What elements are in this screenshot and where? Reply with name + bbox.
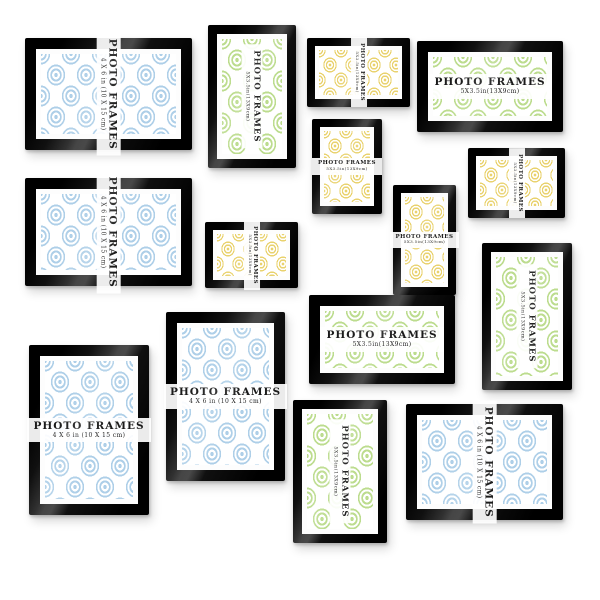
frame-title: PHOTO FRAMES — [339, 425, 349, 517]
frame-size-label: 5X3.5in(13X9cm) — [434, 88, 545, 95]
frame-mat: PHOTO FRAMES 4 X 6 in (10 X 15 cm) — [36, 49, 181, 139]
frame-mat: PHOTO FRAMES 5X3.5in(13X9cm) — [320, 306, 444, 373]
frame-mat: PHOTO FRAMES 5X3.5in(13X9cm) — [476, 156, 557, 210]
frame-label: PHOTO FRAMES 5X3.5in(13X9cm) — [428, 52, 552, 121]
photo-frame-12: PHOTO FRAMES 4 X 6 in (10 X 15 cm) — [29, 345, 149, 515]
frame-size-label: 5X3.5in(13X9cm) — [326, 341, 437, 348]
frame-label: PHOTO FRAMES 4 X 6 in (10 X 15 cm) — [36, 49, 181, 139]
frame-mat: PHOTO FRAMES 5X3.5in(13X9cm) — [217, 34, 287, 159]
frame-mat: PHOTO FRAMES 5X3.5in(13X9cm) — [491, 252, 563, 381]
frame-title: PHOTO FRAMES — [33, 420, 144, 432]
photo-frame-1: PHOTO FRAMES 4 X 6 in (10 X 15 cm) — [25, 38, 192, 150]
frame-mat: PHOTO FRAMES 5X3.5in(13X9cm) — [401, 193, 448, 287]
frame-size-label: 5X3.5in(13X9cm) — [245, 50, 251, 142]
frame-size-label: 5X3.5in(13X9cm) — [353, 44, 358, 102]
frame-mat: PHOTO FRAMES 4 X 6 in (10 X 15 cm) — [36, 189, 181, 275]
photo-frame-13: PHOTO FRAMES 4 X 6 in (10 X 15 cm) — [166, 312, 285, 481]
frame-title: PHOTO FRAMES — [483, 406, 495, 517]
frame-title: PHOTO FRAMES — [326, 329, 437, 341]
frame-size-label: 4 X 6 in (10 X 15 cm) — [475, 406, 482, 517]
frame-mat: PHOTO FRAMES 4 X 6 in (10 X 15 cm) — [40, 356, 138, 504]
frame-size-label: 4 X 6 in (10 X 15 cm) — [99, 38, 106, 149]
photo-frame-15: PHOTO FRAMES 4 X 6 in (10 X 15 cm) — [406, 404, 563, 520]
frame-label: PHOTO FRAMES 4 X 6 in (10 X 15 cm) — [417, 415, 552, 509]
frame-title: PHOTO FRAMES — [251, 50, 261, 142]
photo-frame-6: PHOTO FRAMES 5X3.5in(13X9cm) — [312, 119, 382, 214]
frame-size-label: 4 X 6 in (10 X 15 cm) — [99, 176, 106, 287]
frame-label: PHOTO FRAMES 5X3.5in(13X9cm) — [302, 409, 378, 534]
frame-title: PHOTO FRAMES — [434, 76, 545, 88]
frame-mat: PHOTO FRAMES 5X3.5in(13X9cm) — [428, 52, 552, 121]
frame-label: PHOTO FRAMES 5X3.5in(13X9cm) — [213, 230, 290, 280]
frame-mat: PHOTO FRAMES 5X3.5in(13X9cm) — [320, 127, 374, 206]
photo-frame-10: PHOTO FRAMES 5X3.5in(13X9cm) — [309, 295, 455, 384]
frame-title: PHOTO FRAMES — [107, 176, 119, 287]
frame-label: PHOTO FRAMES 4 X 6 in (10 X 15 cm) — [177, 323, 274, 470]
frame-label: PHOTO FRAMES 5X3.5in(13X9cm) — [320, 306, 444, 373]
frame-label: PHOTO FRAMES 5X3.5in(13X9cm) — [315, 46, 402, 99]
frame-label: PHOTO FRAMES 4 X 6 in (10 X 15 cm) — [40, 356, 138, 504]
frame-mat: PHOTO FRAMES 4 X 6 in (10 X 15 cm) — [417, 415, 552, 509]
frame-size-label: 5X3.5in(13X9cm) — [520, 270, 526, 362]
frame-title: PHOTO FRAMES — [170, 386, 281, 398]
photo-frame-3: PHOTO FRAMES 5X3.5in(13X9cm) — [307, 38, 410, 107]
frame-title: PHOTO FRAMES — [107, 38, 119, 149]
photo-frame-11: PHOTO FRAMES 5X3.5in(13X9cm) — [482, 243, 572, 390]
frame-size-label: 4 X 6 in (10 X 15 cm) — [170, 398, 281, 405]
frame-size-label: 5X3.5in(13X9cm) — [318, 167, 376, 172]
frame-label: PHOTO FRAMES 5X3.5in(13X9cm) — [320, 127, 374, 206]
photo-frame-5: PHOTO FRAMES 4 X 6 in (10 X 15 cm) — [25, 178, 192, 286]
frame-size-label: 5X3.5in(13X9cm) — [246, 226, 251, 284]
frame-size-label: 5X3.5in(13X9cm) — [396, 240, 454, 245]
frame-label: PHOTO FRAMES 5X3.5in(13X9cm) — [476, 156, 557, 210]
frame-label: PHOTO FRAMES 5X3.5in(13X9cm) — [217, 34, 287, 159]
frame-label: PHOTO FRAMES 4 X 6 in (10 X 15 cm) — [36, 189, 181, 275]
frame-size-label: 4 X 6 in (10 X 15 cm) — [33, 432, 144, 439]
frame-title: PHOTO FRAMES — [526, 270, 536, 362]
frame-size-label: 5X3.5in(13X9cm) — [511, 154, 516, 212]
frame-size-label: 5X3.5in(13X9cm) — [333, 425, 339, 517]
frame-mat: PHOTO FRAMES 4 X 6 in (10 X 15 cm) — [177, 323, 274, 470]
frame-mat: PHOTO FRAMES 5X3.5in(13X9cm) — [315, 46, 402, 99]
frame-collage: PHOTO FRAMES 4 X 6 in (10 X 15 cm) PHOTO… — [0, 0, 600, 600]
frame-label: PHOTO FRAMES 5X3.5in(13X9cm) — [491, 252, 563, 381]
photo-frame-2: PHOTO FRAMES 5X3.5in(13X9cm) — [208, 25, 296, 168]
photo-frame-4: PHOTO FRAMES 5X3.5in(13X9cm) — [417, 41, 563, 132]
photo-frame-7: PHOTO FRAMES 5X3.5in(13X9cm) — [205, 222, 298, 288]
photo-frame-9: PHOTO FRAMES 5X3.5in(13X9cm) — [468, 148, 565, 218]
frame-mat: PHOTO FRAMES 5X3.5in(13X9cm) — [302, 409, 378, 534]
frame-mat: PHOTO FRAMES 5X3.5in(13X9cm) — [213, 230, 290, 280]
photo-frame-14: PHOTO FRAMES 5X3.5in(13X9cm) — [293, 400, 387, 543]
photo-frame-8: PHOTO FRAMES 5X3.5in(13X9cm) — [393, 185, 456, 295]
frame-label: PHOTO FRAMES 5X3.5in(13X9cm) — [401, 193, 448, 287]
